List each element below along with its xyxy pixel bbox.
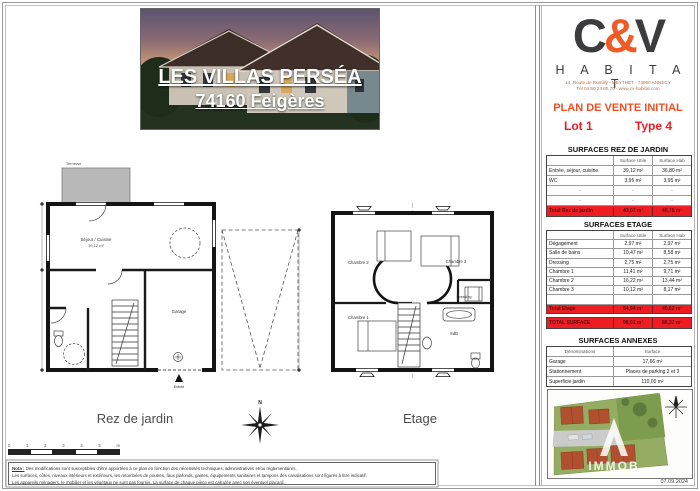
- room-label-chambre1: Chambre 1: [348, 315, 369, 320]
- site-plan-box: IMMOB: [547, 389, 693, 479]
- floorplan-etage: Chambre 2 Chambre 3 Chambre 1 Dressing S…: [328, 203, 500, 381]
- logo-letter-v: V: [635, 9, 663, 62]
- caption-etage: Etage: [365, 411, 475, 426]
- col-surface-hab: Surface Hab: [652, 156, 691, 165]
- room-label-sdb: SdB: [450, 331, 458, 336]
- surface-row: Chambre 3 10,12 m² 8,17 m²: [547, 285, 691, 294]
- project-title: LES VILLAS PERSÉA: [141, 65, 379, 90]
- table-header-row: Surface Utile Surface Hab: [547, 231, 691, 239]
- col-denominations: Dénominations: [547, 347, 613, 356]
- scale-unit: m: [116, 443, 120, 448]
- nota-disclaimer: Nota : Des modifications sont susceptibl…: [8, 462, 436, 485]
- surface-row: Chambre 2 16,22 m² 13,44 m²: [547, 276, 691, 285]
- table-surfaces-rez: Surface Utile Surface Hab Entrée, séjour…: [546, 155, 692, 217]
- watermark-text: IMMOB: [588, 459, 639, 473]
- project-location: 74160 Feigères: [141, 90, 379, 113]
- room-label-chambre2: Chambre 2: [348, 260, 369, 265]
- nota-line-2: Les surfaces, côtes, niveaux intérieurs …: [12, 472, 432, 479]
- nota-text-1: Des modifications sont susceptibles d'êt…: [26, 466, 297, 471]
- total-surface-bar: TOTAL SURFACE 98,01 m² 86,37 m²: [546, 317, 692, 329]
- table-title-rez: SURFACES REZ DE JARDIN: [542, 145, 694, 154]
- scale-strip: [8, 449, 120, 455]
- col-surface: Surface: [613, 347, 691, 356]
- surface-row: [547, 294, 691, 303]
- brand-contact: Tél 04.50.24.60.70 - www.cv-habitat.com: [542, 86, 694, 92]
- annexe-row: Stationnement Places de parking 2 et 3: [547, 366, 691, 376]
- col-surface-hab: Surface Hab: [652, 231, 691, 239]
- logo-letter-c: C: [573, 9, 604, 62]
- col-surface-utile: Surface Utile: [613, 156, 652, 165]
- total-etage-row: Total Etage 54,94 m² 45,62 m²: [547, 304, 691, 313]
- scale-tick: 3: [62, 443, 64, 448]
- scale-tick: 1: [26, 443, 28, 448]
- surface-row: Chambre 1 11,41 m² 9,71 m²: [547, 267, 691, 276]
- annexe-row: Garage 17,66 m²: [547, 356, 691, 366]
- nota-label: Nota :: [12, 466, 24, 471]
- scale-tick: 0: [8, 443, 10, 448]
- site-compass-icon: [665, 396, 687, 418]
- surface-row: Entrée, séjour, cuisine. 39,12 m² 36,80 …: [547, 165, 691, 175]
- room-label-terrasse: Terrasse: [66, 161, 82, 166]
- surface-row: Dégagement 2,97 m² 2,97 m²: [547, 239, 691, 248]
- info-panel: C&V H A B I T A T 14, Route de Rumilly -…: [541, 5, 695, 486]
- scale-bar: 0 1 2 3 4 5 m: [8, 443, 120, 455]
- room-area-sejour: 39,12 m²: [88, 243, 104, 248]
- caption-rez-de-jardin: Rez de jardin: [70, 411, 200, 426]
- scale-tick: 2: [44, 443, 46, 448]
- col-surface-utile: Surface Utile: [613, 231, 652, 239]
- nota-line-3: Les appareils ménagers, le mobilier et l…: [12, 479, 432, 486]
- table-title-annexes: SURFACES ANNEXES: [542, 336, 694, 345]
- scale-tick: 4: [80, 443, 82, 448]
- document-date: 07.09.2024: [542, 479, 688, 485]
- room-label-dressing: Dressing: [457, 295, 472, 299]
- table-header-row: Surface Utile Surface Hab: [547, 156, 691, 165]
- total-rez-row: Total Rez de jardin 43,07 m² 40,75 m²: [547, 205, 691, 216]
- lot-type-row: Lot 1 Type 4: [552, 119, 684, 133]
- cv-habitat-logo: C&V: [542, 12, 694, 59]
- table-header-row: Dénominations Surface: [547, 347, 691, 356]
- room-label-sejour: Séjour / Cuisine: [81, 237, 113, 242]
- floorplan-rez-de-jardin: Terrasse: [36, 145, 302, 403]
- entrance-label: Entrée: [174, 385, 185, 389]
- total-surface-row: TOTAL SURFACE 98,01 m² 86,37 m²: [547, 318, 691, 328]
- scale-tick: 5: [98, 443, 100, 448]
- table-surfaces-etage: Surface Utile Surface Hab Dégagement 2,9…: [546, 230, 692, 314]
- project-photo: LES VILLAS PERSÉA 74160 Feigères: [140, 8, 380, 130]
- plan-de-vente-title: PLAN DE VENTE INITIAL: [542, 102, 694, 114]
- annexe-row: Superficie jardin 110,00 m²: [547, 376, 691, 386]
- scale-labels: 0 1 2 3 4 5 m: [8, 443, 120, 448]
- surface-row: - - -: [547, 195, 691, 205]
- north-label: N: [258, 400, 262, 406]
- room-label-chambre3: Chambre 3: [446, 259, 467, 264]
- surface-row: Dressing 2,75 m² 2,75 m²: [547, 258, 691, 267]
- compass-rose-icon: N: [238, 398, 282, 446]
- table-surfaces-annexes: Dénominations Surface Garage 17,66 m² St…: [546, 346, 692, 387]
- project-title-block: LES VILLAS PERSÉA 74160 Feigères: [141, 65, 379, 113]
- surface-row: WC 3,95 m² 3,95 m²: [547, 175, 691, 185]
- surface-row: - - -: [547, 185, 691, 195]
- table-title-etage: SURFACES ETAGE: [542, 220, 694, 229]
- lot-number: Lot 1: [564, 119, 593, 133]
- nota-line-1: Nota : Des modifications sont susceptibl…: [12, 465, 432, 472]
- panel-divider: [535, 5, 540, 486]
- type-number: Type 4: [635, 119, 672, 133]
- logo-ampersand: &: [604, 9, 635, 62]
- room-label-garage: Garage: [172, 309, 187, 314]
- surface-row: Salle de bains 10,47 m² 8,58 m²: [547, 248, 691, 257]
- plan-de-vente-document: LES VILLAS PERSÉA 74160 Feigères Terrass…: [0, 0, 700, 491]
- site-plan-map: IMMOB: [548, 390, 690, 476]
